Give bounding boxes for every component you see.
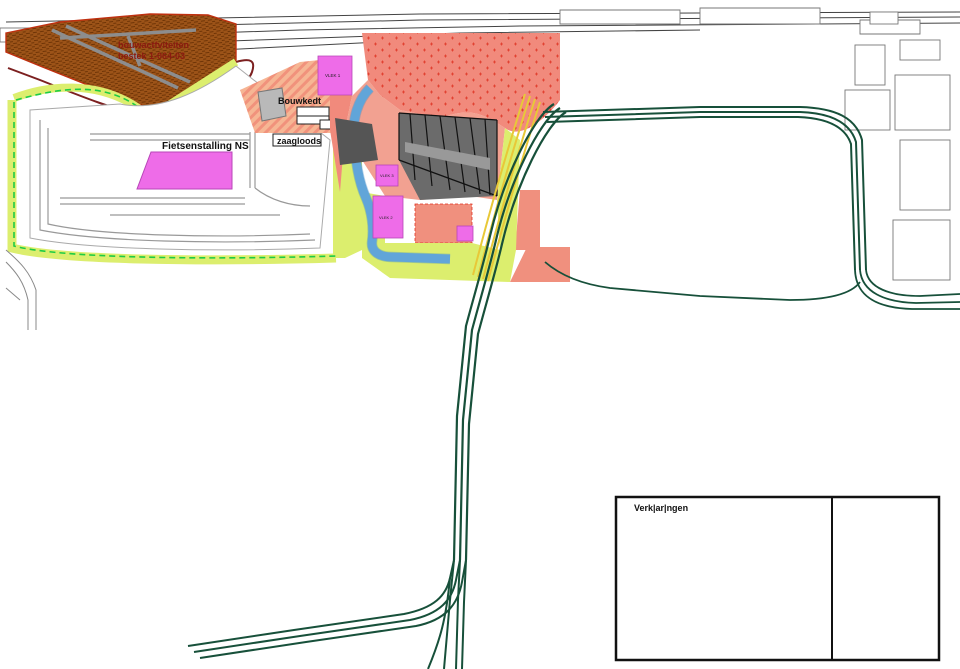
svg-text:VLEK 1: VLEK 1 (325, 73, 341, 78)
svg-text:zaagloods: zaagloods (277, 136, 321, 146)
svg-text:VLEK 2: VLEK 2 (379, 215, 393, 220)
svg-text:VLEK 3: VLEK 3 (380, 173, 394, 178)
svg-text:Verk|ar|ngen: Verk|ar|ngen (634, 503, 688, 513)
svg-text:bouwactfviteiten: bouwactfviteiten (118, 40, 189, 50)
svg-text:Fietsenstalling NS: Fietsenstalling NS (162, 141, 249, 152)
svg-text:bestek 1-064-03: bestek 1-064-03 (118, 51, 185, 61)
svg-text:Bouwkedt: Bouwkedt (278, 96, 321, 106)
